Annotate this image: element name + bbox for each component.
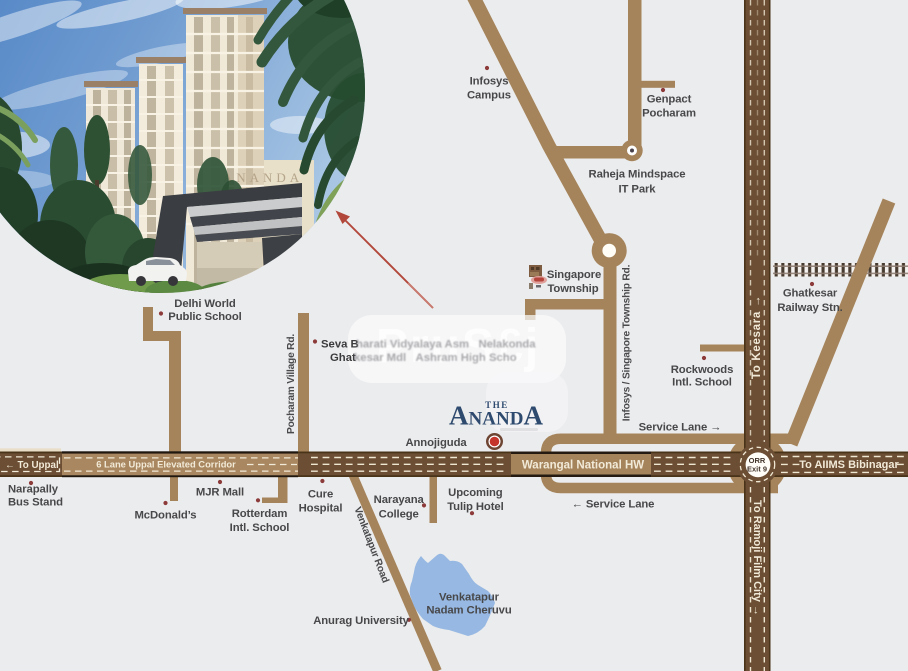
svg-text:kesar Mdl Ashram High Scho: kesar Mdl Ashram High Scho bbox=[354, 352, 517, 364]
svg-text:To Ramoji Film City →: To Ramoji Film City → bbox=[751, 500, 763, 616]
svg-text:Township: Township bbox=[547, 283, 598, 295]
svg-text:Nadam Cheruvu: Nadam Cheruvu bbox=[426, 605, 512, 617]
svg-text:6 Lane Uppal Elevated Corridor: 6 Lane Uppal Elevated Corridor bbox=[96, 459, 236, 470]
svg-text:Upcoming: Upcoming bbox=[448, 487, 503, 499]
svg-text:Pocharam Village Rd.: Pocharam Village Rd. bbox=[286, 334, 297, 434]
svg-text:MJR Mall: MJR Mall bbox=[196, 487, 244, 499]
svg-text:Service Lane →: Service Lane → bbox=[639, 422, 722, 434]
svg-text:Warangal National HW: Warangal National HW bbox=[522, 460, 644, 472]
svg-text:Public School: Public School bbox=[168, 311, 241, 323]
svg-text:Singapore: Singapore bbox=[547, 269, 601, 281]
svg-text:Anurag University: Anurag University bbox=[313, 615, 409, 627]
svg-text:Intl. School: Intl. School bbox=[672, 377, 732, 389]
svg-text:Tulip Hotel: Tulip Hotel bbox=[447, 501, 503, 513]
svg-text:Rockwoods: Rockwoods bbox=[671, 364, 734, 376]
svg-text:Delhi World: Delhi World bbox=[174, 298, 236, 310]
svg-text:To AIIMS Bibinagar: To AIIMS Bibinagar bbox=[799, 459, 899, 471]
svg-text:Bus Stand: Bus Stand bbox=[8, 497, 63, 509]
svg-text:Infosys: Infosys bbox=[470, 76, 509, 88]
svg-text:← To Uppal: ← To Uppal bbox=[5, 460, 59, 471]
svg-text:McDonald’s: McDonald’s bbox=[135, 510, 197, 522]
svg-text:Narayana: Narayana bbox=[374, 494, 425, 506]
svg-text:Cure: Cure bbox=[308, 489, 333, 501]
svg-text:harati Vidyalaya Asm Nelakon: harati Vidyalaya Asm Nelakonda bbox=[356, 339, 536, 351]
svg-text:Raheja Mindspace: Raheja Mindspace bbox=[589, 169, 686, 181]
svg-text:← Service Lane: ← Service Lane bbox=[572, 499, 655, 511]
svg-text:IT Park: IT Park bbox=[619, 184, 657, 196]
svg-text:Ghat: Ghat bbox=[330, 352, 356, 364]
svg-text:To Keesara →: To Keesara → bbox=[751, 295, 763, 379]
svg-text:Narapally: Narapally bbox=[8, 484, 59, 496]
svg-text:Hospital: Hospital bbox=[299, 503, 343, 515]
svg-text:Rotterdam: Rotterdam bbox=[232, 508, 288, 520]
svg-text:Intl. School: Intl. School bbox=[230, 522, 290, 534]
svg-text:Exit 9: Exit 9 bbox=[747, 464, 767, 473]
svg-text:Campus: Campus bbox=[467, 90, 511, 102]
svg-text:Venkatapur: Venkatapur bbox=[439, 592, 500, 604]
svg-text:College: College bbox=[379, 509, 419, 521]
svg-text:Ghatkesar: Ghatkesar bbox=[783, 288, 838, 300]
svg-text:Annojiguda: Annojiguda bbox=[405, 437, 467, 449]
svg-text:Seva B: Seva B bbox=[321, 339, 359, 351]
svg-text:Genpact: Genpact bbox=[647, 94, 692, 106]
svg-text:Pocharam: Pocharam bbox=[642, 107, 696, 119]
svg-text:Railway Stn.: Railway Stn. bbox=[777, 302, 842, 314]
svg-text:Infosys / Singapore Township R: Infosys / Singapore Township Rd. bbox=[622, 264, 633, 421]
